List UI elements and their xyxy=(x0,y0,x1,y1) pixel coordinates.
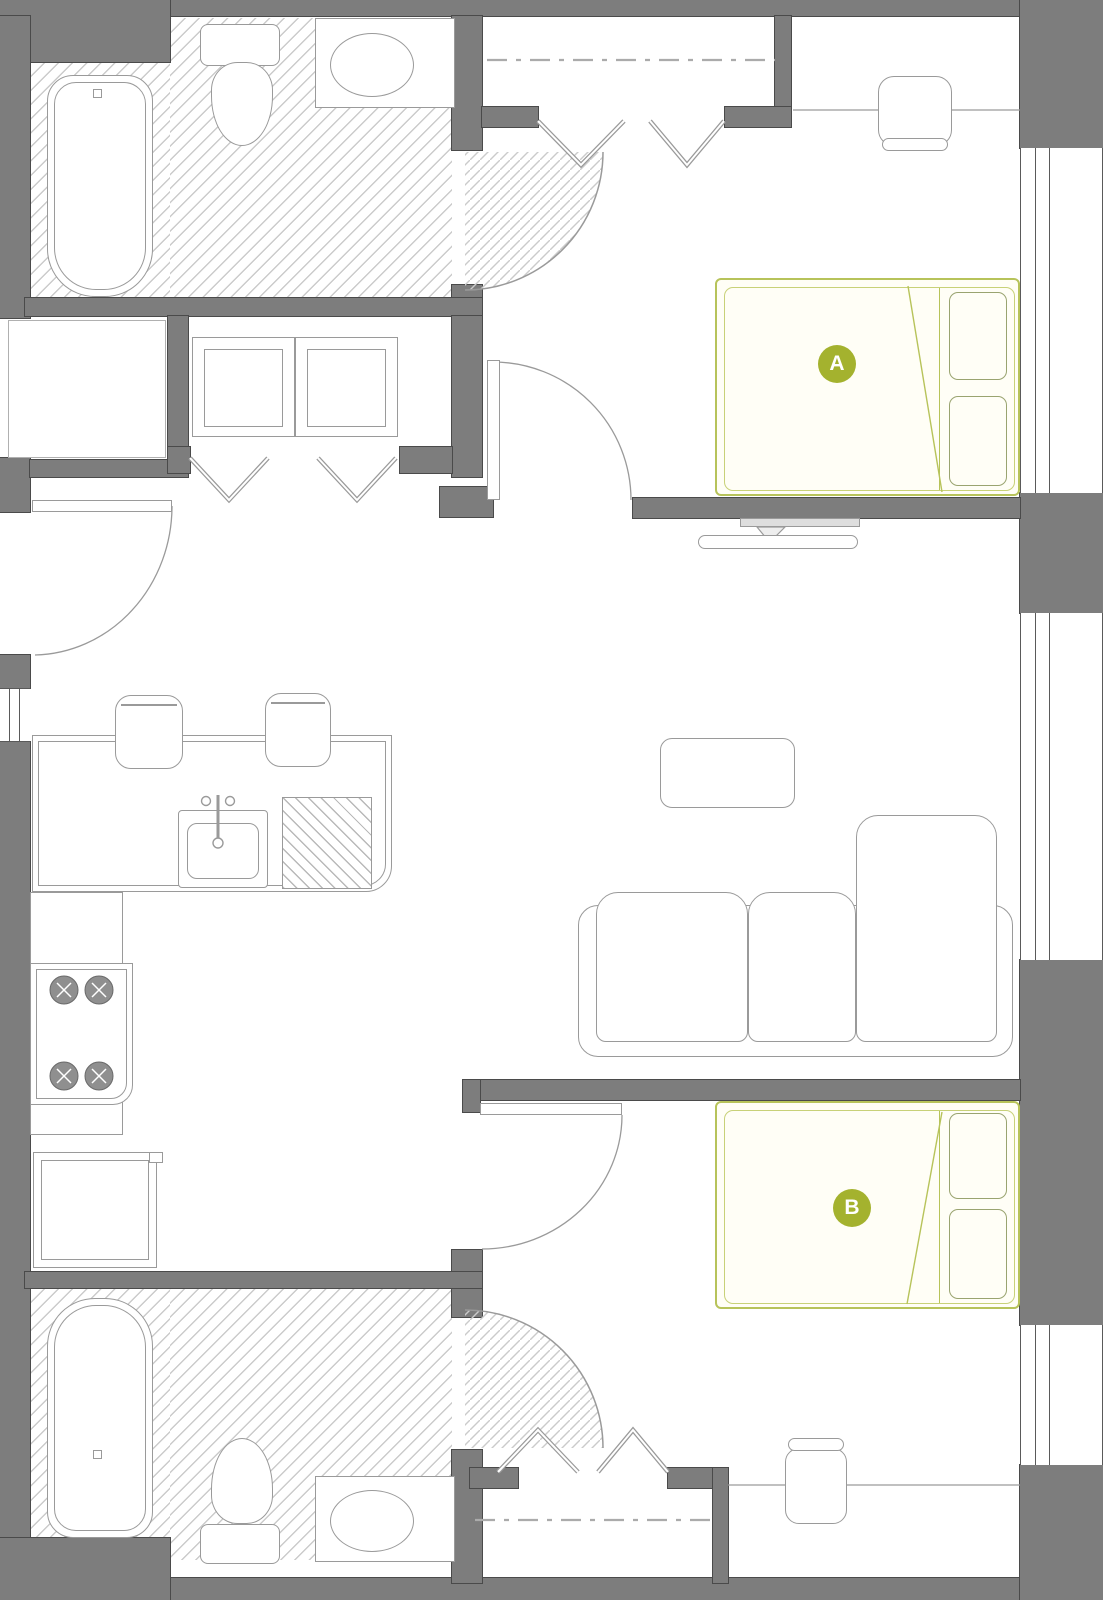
sofa-cushion-1 xyxy=(596,892,748,1042)
toilet-top-tank xyxy=(200,24,280,66)
door-leaf-bedroom-a xyxy=(487,360,500,500)
wall-closet-b-stub-left xyxy=(470,1468,518,1488)
desk-chair-bedroom-b-back xyxy=(788,1438,844,1451)
wall-bath-bottom-top xyxy=(25,1272,482,1288)
wall-left-1 xyxy=(0,16,30,318)
bed-a-headboard-line xyxy=(939,288,940,490)
bedroom-a-badge: A xyxy=(818,345,856,383)
wall-right-block-3 xyxy=(1020,960,1103,1325)
coffee-table xyxy=(660,738,795,808)
entry-door-leaf xyxy=(32,500,172,512)
wall-alcove-right xyxy=(168,316,188,462)
door-swing-bedroom-b xyxy=(482,1115,622,1249)
wall-left-2 xyxy=(0,458,30,512)
wall-laundry-right xyxy=(452,316,482,477)
door-leaf-bedroom-b xyxy=(480,1103,622,1115)
bar-stool-1-edge xyxy=(121,704,177,706)
bathtub-top-inner xyxy=(54,82,146,290)
bed-a-pillow-1 xyxy=(949,292,1007,380)
desk-chair-bedroom-a xyxy=(878,76,952,146)
wall-bedroom-a-bottom xyxy=(633,498,1020,518)
tv-wall-bracket xyxy=(740,518,860,527)
window-mullion xyxy=(1035,613,1036,960)
wall-alcove-bottom xyxy=(30,460,188,477)
desk-chair-bedroom-a-back xyxy=(882,138,948,151)
tv-console xyxy=(698,535,858,549)
wall-bath-top-bottom xyxy=(25,298,482,316)
wall-laundry-stub-right xyxy=(400,447,452,473)
kitchen-sink-basin xyxy=(187,823,259,879)
bed-b-headboard-line xyxy=(939,1111,940,1303)
entry-alcove-frame xyxy=(8,320,166,458)
wall-bottom-left-block xyxy=(0,1538,170,1600)
window-bedroom-a xyxy=(1020,148,1103,493)
wall-left-3 xyxy=(0,655,30,688)
bed-b-pillow-2 xyxy=(949,1209,1007,1299)
floor-plan: A B xyxy=(0,0,1103,1600)
wall-top-right-block xyxy=(1020,0,1103,148)
wall-right-block-4 xyxy=(1020,1465,1103,1600)
dishwasher-hatched xyxy=(282,797,372,889)
refrigerator-inner xyxy=(41,1160,149,1260)
window-mullion xyxy=(9,689,10,741)
wall-bath-top-right-upper xyxy=(452,16,482,150)
window-mullion xyxy=(1035,148,1036,493)
wall-living-bedroom-b-cap xyxy=(463,1080,480,1112)
window-living-room xyxy=(1020,613,1103,960)
wall-laundry-stub-left xyxy=(168,447,190,473)
wall-hall-corner-block xyxy=(440,487,493,517)
bed-a-pillow-2 xyxy=(949,396,1007,486)
window-mullion xyxy=(1049,613,1050,960)
bed-b-pillow-1 xyxy=(949,1113,1007,1199)
bifold-doors-laundry xyxy=(190,458,396,500)
bedroom-b-badge: B xyxy=(833,1189,871,1227)
washer-inner xyxy=(204,349,283,427)
window-left-wall xyxy=(0,688,30,742)
door-swing-bathroom-bottom xyxy=(465,1310,603,1448)
bifold-doors-closet-a xyxy=(538,121,724,165)
bathtub-top-drain xyxy=(93,89,102,98)
wall-right-block-2 xyxy=(1020,493,1103,613)
bar-stool-1 xyxy=(115,695,183,769)
sofa-cushion-2 xyxy=(748,892,856,1042)
refrigerator-handle xyxy=(149,1152,163,1163)
window-mullion xyxy=(19,689,20,741)
window-mullion xyxy=(1049,148,1050,493)
bathtub-bottom-inner xyxy=(54,1305,146,1531)
range-stove-inner xyxy=(36,969,127,1099)
wall-closet-a-stub-left xyxy=(482,107,538,127)
door-swing-bedroom-a xyxy=(493,362,631,500)
sofa-chaise xyxy=(856,815,997,1042)
dryer-inner xyxy=(307,349,386,427)
wall-living-bedroom-b xyxy=(463,1080,1020,1100)
wall-left-4 xyxy=(0,742,30,1578)
bed-bedroom-a xyxy=(715,278,1020,496)
wall-closet-b-right xyxy=(713,1468,728,1583)
window-bedroom-b xyxy=(1020,1325,1103,1465)
desk-chair-bedroom-b xyxy=(785,1448,847,1524)
bifold-doors-closet-b xyxy=(498,1430,668,1472)
bar-stool-2-edge xyxy=(271,702,325,704)
door-swing-bathroom-top xyxy=(465,152,603,290)
vanity-top-basin xyxy=(330,33,414,97)
window-mullion xyxy=(1035,1325,1036,1465)
toilet-bottom-tank xyxy=(200,1524,280,1564)
wall-closet-a-stub-right xyxy=(725,107,791,127)
bedroom-a-label: A xyxy=(829,352,844,376)
window-mullion xyxy=(1049,1325,1050,1465)
bedroom-b-label: B xyxy=(844,1196,859,1220)
bar-stool-2 xyxy=(265,693,331,767)
door-swing-entry xyxy=(35,506,172,655)
bathtub-bottom-drain xyxy=(93,1450,102,1459)
vanity-bottom-basin xyxy=(330,1490,414,1552)
